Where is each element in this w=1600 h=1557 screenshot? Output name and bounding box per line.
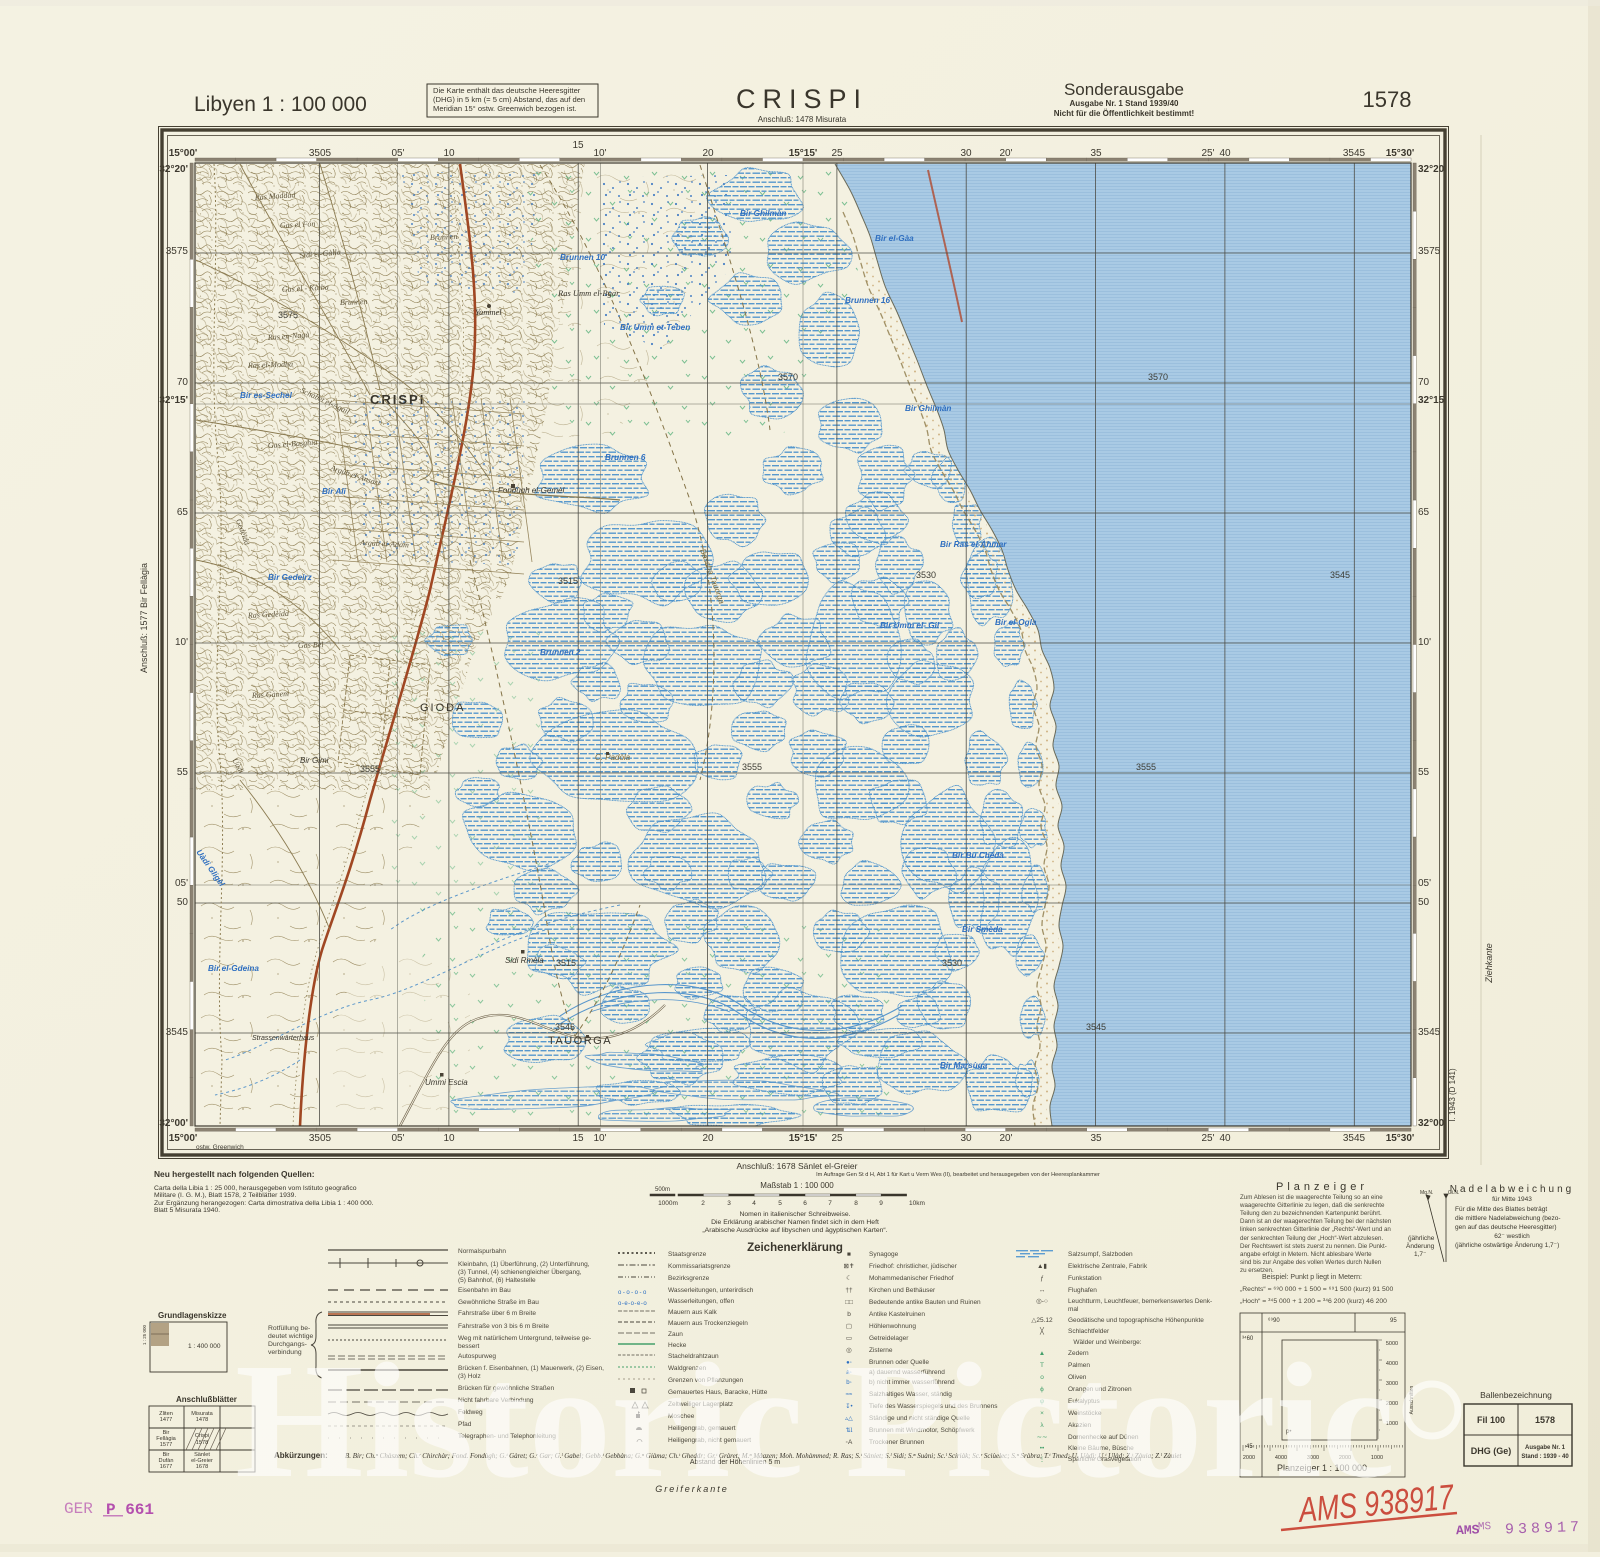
svg-text:3545: 3545 <box>1343 148 1366 159</box>
svg-text:Die Erklärung arabischer Namen: Die Erklärung arabischer Namen findet si… <box>711 1219 879 1226</box>
svg-text:Geodätische und topographische: Geodätische und topographische Höhenpunk… <box>1068 1317 1204 1324</box>
svg-text:für Mitte 1943: für Mitte 1943 <box>1492 1196 1532 1203</box>
svg-text:MS: MS <box>1478 1521 1492 1533</box>
svg-text:Ausgabe Nr. 1: Ausgabe Nr. 1 <box>1525 1445 1566 1451</box>
svg-text:Planzeiger: Planzeiger <box>1276 1181 1368 1193</box>
svg-text:Bedeutende antike Bauten und R: Bedeutende antike Bauten und Ruinen <box>869 1299 981 1306</box>
svg-text:Bir Smèda: Bir Smèda <box>962 925 1003 934</box>
svg-text:Teilung den zu bezeichnenden K: Teilung den zu bezeichnenden Kartenpunkt… <box>1240 1210 1382 1217</box>
svg-text:Flughafen: Flughafen <box>1068 1287 1097 1294</box>
svg-text:Wasserleitungen, unterirdisch: Wasserleitungen, unterirdisch <box>668 1287 754 1294</box>
svg-text:□□: □□ <box>845 1299 853 1306</box>
svg-text:1477: 1477 <box>160 1417 172 1423</box>
svg-text:Bir Ghilmàn: Bir Ghilmàn <box>740 209 786 218</box>
svg-text:(jährliche ostwärtige Änderung: (jährliche ostwärtige Änderung 1,7⁻) <box>1455 1241 1559 1249</box>
svg-text:ƒ: ƒ <box>1040 1275 1044 1282</box>
svg-text:der senkrechten Teilung der „H: der senkrechten Teilung der „Hoch“-Wert … <box>1240 1235 1383 1242</box>
svg-text:Ziehkante: Ziehkante <box>1484 943 1494 984</box>
svg-text:„Rechts“ = ⁶⁹0 000 + 1 500 = ⁶: „Rechts“ = ⁶⁹0 000 + 1 500 = ⁶⁹1 500 (ku… <box>1240 1286 1394 1293</box>
svg-text:Bir Bu Chèda: Bir Bu Chèda <box>952 851 1004 860</box>
svg-text:65: 65 <box>177 507 189 518</box>
svg-text:3570: 3570 <box>1148 372 1168 382</box>
svg-text:10': 10' <box>175 637 188 648</box>
svg-text:Mauern aus Kalk: Mauern aus Kalk <box>668 1309 718 1316</box>
svg-text:mal: mal <box>1068 1306 1079 1313</box>
svg-text:50: 50 <box>177 897 189 908</box>
svg-text:o-e-o-e-o: o-e-o-e-o <box>618 1301 647 1307</box>
svg-text:Maßstab 1 : 100 000: Maßstab 1 : 100 000 <box>760 1181 834 1190</box>
svg-text:Grundlagenskizze: Grundlagenskizze <box>158 1311 227 1320</box>
svg-text:55: 55 <box>1418 767 1430 778</box>
svg-text:(5) Bahnhof, (6) Haltestelle: (5) Bahnhof, (6) Haltestelle <box>458 1277 536 1284</box>
svg-text:Bir Marsùga: Bir Marsùga <box>940 1061 988 1070</box>
svg-text:32°00': 32°00' <box>1418 1118 1447 1129</box>
svg-text:Eisenbahn im Bau: Eisenbahn im Bau <box>458 1287 511 1294</box>
svg-text:Im Auftrage Gen St d H, Abt 1: Im Auftrage Gen St d H, Abt 1 für Kart u… <box>816 1172 1100 1178</box>
svg-text:35: 35 <box>1090 1133 1102 1144</box>
svg-text:Bir Ras el-Àhmar: Bir Ras el-Àhmar <box>940 539 1007 549</box>
svg-text:AMS: AMS <box>1456 1522 1480 1538</box>
svg-text:Kleinbahn, (1) Überführung, (2: Kleinbahn, (1) Überführung, (2) Unterfüh… <box>458 1260 590 1268</box>
svg-text:1 : 400 000: 1 : 400 000 <box>188 1343 221 1350</box>
svg-text:linken senkrechten Gitterlinie: linken senkrechten Gitterlinie der „Rech… <box>1240 1226 1391 1233</box>
svg-text:50: 50 <box>1418 897 1430 908</box>
svg-text:95: 95 <box>1390 1318 1397 1324</box>
svg-text:10km: 10km <box>909 1200 925 1207</box>
svg-text:15°30': 15°30' <box>1386 1133 1415 1144</box>
svg-text:15°15': 15°15' <box>789 148 818 159</box>
svg-text:waagerechte Gitterlinie zu leg: waagerechte Gitterlinie zu legen, daß di… <box>1239 1202 1385 1209</box>
svg-text:10': 10' <box>593 1133 606 1144</box>
svg-text:Sidi Rmèla: Sidi Rmèla <box>505 956 544 965</box>
svg-text:3545: 3545 <box>1330 570 1350 580</box>
svg-text:Blatt 5 Misurata 1940.: Blatt 5 Misurata 1940. <box>154 1207 220 1214</box>
svg-text:Mauern aus Trockenziegeln: Mauern aus Trockenziegeln <box>668 1320 748 1327</box>
svg-text:Fahrstraße über 6 m Breite: Fahrstraße über 6 m Breite <box>458 1310 536 1317</box>
svg-text:Yummel: Yummel <box>475 307 502 317</box>
svg-text:Bir Gimi: Bir Gimi <box>300 756 329 765</box>
svg-text:„Hoch“ = ³⁴5 000 + 1 200 = ³⁴: „Hoch“ = ³⁴5 000 + 1 200 = ³⁴6 200 (kurz… <box>1240 1298 1387 1305</box>
svg-text:05': 05' <box>1418 878 1431 889</box>
svg-text:20: 20 <box>702 148 714 159</box>
svg-text:10': 10' <box>593 148 606 159</box>
svg-text:10: 10 <box>443 148 455 159</box>
svg-text:Gewöhnliche Straße im Bau: Gewöhnliche Straße im Bau <box>458 1299 539 1306</box>
svg-text:15°00': 15°00' <box>169 1133 198 1144</box>
svg-text:o-o-o-o: o-o-o-o <box>618 1290 648 1296</box>
svg-text:Zeichenerklärung: Zeichenerklärung <box>747 1242 843 1254</box>
svg-text:DHG (Ge): DHG (Ge) <box>1471 1446 1512 1456</box>
svg-text:GIODA: GIODA <box>420 702 465 714</box>
svg-text:40: 40 <box>1219 148 1231 159</box>
svg-text:Der Rechtswert ist stets zuers: Der Rechtswert ist stets zuerst zu nenne… <box>1240 1243 1387 1250</box>
svg-text:15°15': 15°15' <box>789 1133 818 1144</box>
svg-text:Ausgabe Nr. 1 Stand 1939/40: Ausgabe Nr. 1 Stand 1939/40 <box>1070 99 1179 108</box>
svg-text:Libyen 1 : 100 000: Libyen 1 : 100 000 <box>194 93 367 116</box>
svg-text:Brunnen 16: Brunnen 16 <box>845 296 890 305</box>
svg-text:05': 05' <box>175 878 188 889</box>
svg-text:1,7⁻: 1,7⁻ <box>1414 1251 1427 1258</box>
svg-text:05': 05' <box>391 148 404 159</box>
svg-text:3530: 3530 <box>916 570 936 580</box>
svg-text:Kommissariatsgrenze: Kommissariatsgrenze <box>668 1263 731 1270</box>
svg-text:angabe erfolgt in Metern. Nich: angabe erfolgt in Metern. Nicht ablesbar… <box>1240 1251 1372 1258</box>
svg-text:Anschluß: 1678 Sänlet el-Greie: Anschluß: 1678 Sänlet el-Greier <box>737 1161 858 1171</box>
svg-text:b: b <box>847 1311 851 1318</box>
svg-text:Gas Bei: Gas Bei <box>298 640 324 650</box>
svg-text:Brunnen: Brunnen <box>340 297 368 307</box>
svg-text:8: 8 <box>854 1200 858 1207</box>
svg-text:1677: 1677 <box>160 1464 172 1470</box>
svg-text:Nicht für die Öffentlichkeit b: Nicht für die Öffentlichkeit bestimmt! <box>1054 109 1194 118</box>
svg-text:5: 5 <box>778 1200 782 1207</box>
svg-text:32°15': 32°15' <box>1418 395 1447 406</box>
svg-text:15: 15 <box>572 140 584 151</box>
svg-text:Bir Umm et-Teben: Bir Umm et-Teben <box>620 323 690 332</box>
svg-text:Neu hergestellt nach folgenden: Neu hergestellt nach folgenden Quellen: <box>154 1169 315 1179</box>
svg-text:ostw. Greenwich: ostw. Greenwich <box>196 1144 244 1151</box>
svg-text:3555: 3555 <box>360 764 380 774</box>
svg-text:30: 30 <box>960 148 972 159</box>
svg-text:25': 25' <box>1201 1133 1214 1144</box>
svg-text:Mohammedanischer Friedhof: Mohammedanischer Friedhof <box>869 1275 954 1282</box>
svg-text:Ballenbezeichnung: Ballenbezeichnung <box>1480 1390 1552 1400</box>
svg-text:Nomen in italienischer Schreib: Nomen in italienischer Schreibweise. <box>739 1211 850 1218</box>
svg-text:Staatsgrenze: Staatsgrenze <box>668 1251 707 1258</box>
svg-text:500m: 500m <box>655 1187 670 1193</box>
svg-text:Synagoge: Synagoge <box>869 1251 899 1258</box>
svg-text:1578: 1578 <box>1363 87 1412 112</box>
svg-text:05': 05' <box>391 1133 404 1144</box>
svg-text:Bir Ghilmàn: Bir Ghilmàn <box>905 404 951 413</box>
svg-text:40: 40 <box>1219 1133 1231 1144</box>
svg-text:938917: 938917 <box>1505 1519 1584 1539</box>
svg-text:Gi.N.: Gi.N. <box>1448 1190 1459 1196</box>
svg-text:Friedhof: christlicher, jüdisc: Friedhof: christlicher, jüdischer <box>869 1263 958 1270</box>
svg-text:9: 9 <box>879 1200 883 1207</box>
svg-text:Brunnen 6: Brunnen 6 <box>605 453 646 462</box>
svg-text:1578: 1578 <box>196 1440 208 1446</box>
svg-text:Gas el Fón: Gas el Fón <box>280 219 316 230</box>
svg-text:GER: GER <box>64 1500 93 1518</box>
svg-text:10': 10' <box>1418 637 1431 648</box>
svg-text:▲▮: ▲▮ <box>1037 1263 1047 1270</box>
svg-text:Bir es-Sechel: Bir es-Sechel <box>240 391 293 400</box>
svg-text:Fil 100: Fil 100 <box>1477 1415 1505 1425</box>
svg-text:Antike Kastelruinen: Antike Kastelruinen <box>869 1311 925 1318</box>
svg-text:1478: 1478 <box>196 1417 208 1423</box>
svg-text:3570: 3570 <box>778 372 798 382</box>
svg-text:7: 7 <box>828 1200 832 1207</box>
svg-text:25: 25 <box>831 1133 843 1144</box>
svg-text:■: ■ <box>847 1251 851 1258</box>
svg-text:1000m: 1000m <box>658 1200 678 1207</box>
svg-text:Ras el-Modba: Ras el-Modba <box>247 359 293 370</box>
svg-text:70: 70 <box>177 377 189 388</box>
svg-text:gen auf das deutsche Heere: gen auf das deutsche Heeresgitter) <box>1455 1224 1557 1231</box>
svg-text:Beispiel: Punkt p liegt in Met: Beispiel: Punkt p liegt in Metern: <box>1262 1274 1362 1281</box>
svg-text:Leuchtturm, Leuchtfeuer, bemer: Leuchtturm, Leuchtfeuer, bemerkenswertes… <box>1068 1298 1212 1305</box>
svg-text:3545: 3545 <box>555 1022 575 1032</box>
svg-text:62⁻ westlich: 62⁻ westlich <box>1494 1233 1530 1240</box>
svg-text:3530: 3530 <box>942 958 962 968</box>
svg-text:30: 30 <box>960 1133 972 1144</box>
svg-text:4: 4 <box>752 1200 756 1207</box>
svg-text:(3) Tunnel, (4) schienengleich: (3) Tunnel, (4) schienengleicher Übergan… <box>458 1268 582 1276</box>
svg-text:Sonderausgabe: Sonderausgabe <box>1064 80 1184 99</box>
svg-text:Crispi: Crispi <box>195 1433 209 1439</box>
svg-text:3575: 3575 <box>166 246 189 257</box>
svg-text:Bir el-Gdeina: Bir el-Gdeina <box>208 964 259 973</box>
svg-text:3545: 3545 <box>166 1027 189 1038</box>
svg-text:3: 3 <box>727 1200 731 1207</box>
svg-text:Brunnen 10: Brunnen 10 <box>560 253 605 262</box>
svg-text:Bir Gedeirz: Bir Gedeirz <box>268 573 313 582</box>
svg-text:Zur Ergänzung herangezogen: Ca: Zur Ergänzung herangezogen: Carta dimost… <box>154 1200 374 1207</box>
svg-text:Anschluß: 1577 Bir Fellàgia: Anschluß: 1577 Bir Fellàgia <box>139 563 149 673</box>
svg-text:Meridian 15° ostw. Greenwich b: Meridian 15° ostw. Greenwich bezogen ist… <box>433 104 577 113</box>
svg-text:32°20': 32°20' <box>1418 164 1447 175</box>
svg-text:C. Padòla: C. Padòla <box>595 753 631 762</box>
svg-text:Historic Pictoric: Historic Pictoric <box>235 1329 1395 1512</box>
svg-text:15: 15 <box>572 1133 584 1144</box>
svg-text:zu ersetzen.: zu ersetzen. <box>1240 1267 1274 1274</box>
svg-text:Dann ist an der waagerechten T: Dann ist an der waagerechten Teilung bei… <box>1240 1218 1392 1225</box>
svg-text:Mq.N.: Mq.N. <box>1420 1190 1433 1196</box>
svg-text:3515: 3515 <box>556 958 576 968</box>
svg-text:35: 35 <box>1090 148 1102 159</box>
svg-text:15°30': 15°30' <box>1386 148 1415 159</box>
svg-text:55: 55 <box>177 767 189 778</box>
svg-text:20: 20 <box>702 1133 714 1144</box>
svg-text:sind bis zur Angabe des vollen: sind bis zur Angabe des vollen Wertes du… <box>1240 1259 1382 1266</box>
svg-text:Militare (I. G. M.), Blatt 157: Militare (I. G. M.), Blatt 1578, 2 Teilb… <box>154 1192 296 1199</box>
svg-text:Nadelabweichung: Nadelabweichung <box>1450 1184 1575 1195</box>
svg-text:Stand : 1939 - 40: Stand : 1939 - 40 <box>1521 1454 1569 1460</box>
svg-text:1678: 1678 <box>196 1464 208 1470</box>
svg-text:Anschluß: 1478 Misurata: Anschluß: 1478 Misurata <box>758 115 847 124</box>
svg-text:Ummi Escia: Ummi Escia <box>425 1078 468 1087</box>
svg-text:Brunnen: Brunnen <box>430 232 458 242</box>
svg-text:Kirchen und Bethäuser: Kirchen und Bethäuser <box>869 1287 936 1294</box>
svg-text:3505: 3505 <box>309 1133 332 1144</box>
svg-text:1578: 1578 <box>1535 1415 1555 1425</box>
svg-text:15°00': 15°00' <box>169 148 198 159</box>
svg-text:Funkstation: Funkstation <box>1068 1275 1102 1282</box>
svg-text:Die Karte enthält das deutsche: Die Karte enthält das deutsche Heeresgit… <box>433 86 581 95</box>
svg-text:Zum Ablesen ist die waagerecht: Zum Ablesen ist die waagerechte Teilung … <box>1240 1194 1383 1201</box>
svg-text:20': 20' <box>999 1133 1012 1144</box>
svg-text:25: 25 <box>831 148 843 159</box>
svg-text:3555: 3555 <box>742 762 762 772</box>
svg-text:(jährliche: (jährliche <box>1408 1235 1435 1242</box>
svg-text:Bir Ali: Bir Ali <box>322 487 347 496</box>
svg-text:3515: 3515 <box>558 576 578 586</box>
svg-text:Salzsumpf, Salzboden: Salzsumpf, Salzboden <box>1068 1251 1133 1258</box>
svg-text:Brunnen 2: Brunnen 2 <box>540 648 581 657</box>
svg-text:Änderung: Änderung <box>1406 1242 1435 1250</box>
svg-text:Wasserleitungen, offen: Wasserleitungen, offen <box>668 1298 735 1305</box>
svg-text:6: 6 <box>803 1200 807 1207</box>
svg-text:Für die Mitte des Blattes: Für die Mitte des Blattes beträgt <box>1455 1206 1547 1213</box>
svg-text:↔: ↔ <box>1039 1287 1046 1294</box>
svg-text:die mittlere Nadelabweichung: die mittlere Nadelabweichung (bezo- <box>1455 1215 1561 1222</box>
svg-text:70: 70 <box>1418 377 1430 388</box>
svg-text:Ras Umm el-Bgar: Ras Umm el-Bgar <box>557 288 620 298</box>
svg-text:3575: 3575 <box>1418 246 1441 257</box>
svg-text:3545: 3545 <box>1343 1133 1366 1144</box>
svg-text:Bir el-Ogla: Bir el-Ogla <box>995 618 1037 627</box>
svg-text:(DHG) in 5 km (= 5 cm) Abstand: (DHG) in 5 km (= 5 cm) Abstand, das auf … <box>433 95 585 104</box>
svg-text:☾: ☾ <box>846 1274 852 1282</box>
svg-text:Bir Umm el- Gil: Bir Umm el- Gil <box>880 621 940 630</box>
svg-text:⁶⁹90: ⁶⁹90 <box>1268 1317 1280 1324</box>
svg-text:◎-○: ◎-○ <box>1036 1298 1048 1305</box>
svg-text:Fondùgh el-Gemèl: Fondùgh el-Gemèl <box>498 486 564 495</box>
svg-text:3545: 3545 <box>1086 1022 1106 1032</box>
svg-text:Elektrische Zentrale, Fabrik: Elektrische Zentrale, Fabrik <box>1068 1263 1148 1270</box>
svg-text:3545: 3545 <box>1418 1027 1441 1038</box>
svg-text:△25.12: △25.12 <box>1031 1317 1053 1324</box>
svg-text:Normalspurbahn: Normalspurbahn <box>458 1248 506 1255</box>
svg-text:††: †† <box>845 1287 853 1294</box>
svg-text:1 : 25 000: 1 : 25 000 <box>142 1324 147 1345</box>
svg-text:65: 65 <box>1418 507 1430 518</box>
svg-text:„Arabische Ausdrücke auf libys: „Arabische Ausdrücke auf libyschen und ä… <box>702 1227 887 1234</box>
svg-text:Carta della Libia 1 : 25 000,: Carta della Libia 1 : 25 000, herausgege… <box>154 1185 357 1192</box>
svg-text:Bezirksgrenze: Bezirksgrenze <box>668 1275 710 1282</box>
svg-text:10: 10 <box>443 1133 455 1144</box>
svg-text:Bir el-Gàa: Bir el-Gàa <box>875 234 914 243</box>
svg-text:25': 25' <box>1201 148 1214 159</box>
svg-text:3505: 3505 <box>309 148 332 159</box>
svg-text:1577: 1577 <box>160 1442 172 1448</box>
svg-text:⊠✝: ⊠✝ <box>844 1262 855 1270</box>
svg-text:Strassenwärterhaus: Strassenwärterhaus <box>252 1035 315 1042</box>
svg-text:I. 1943 (D 141): I. 1943 (D 141) <box>1448 1068 1457 1122</box>
svg-text:20': 20' <box>999 148 1012 159</box>
svg-text:3555: 3555 <box>1136 762 1156 772</box>
svg-text:2: 2 <box>701 1200 705 1207</box>
svg-text:CRISPI: CRISPI <box>736 84 868 114</box>
svg-text:Anschlußblätter: Anschlußblätter <box>176 1395 237 1404</box>
svg-text:TAUORGA: TAUORGA <box>548 1035 612 1047</box>
